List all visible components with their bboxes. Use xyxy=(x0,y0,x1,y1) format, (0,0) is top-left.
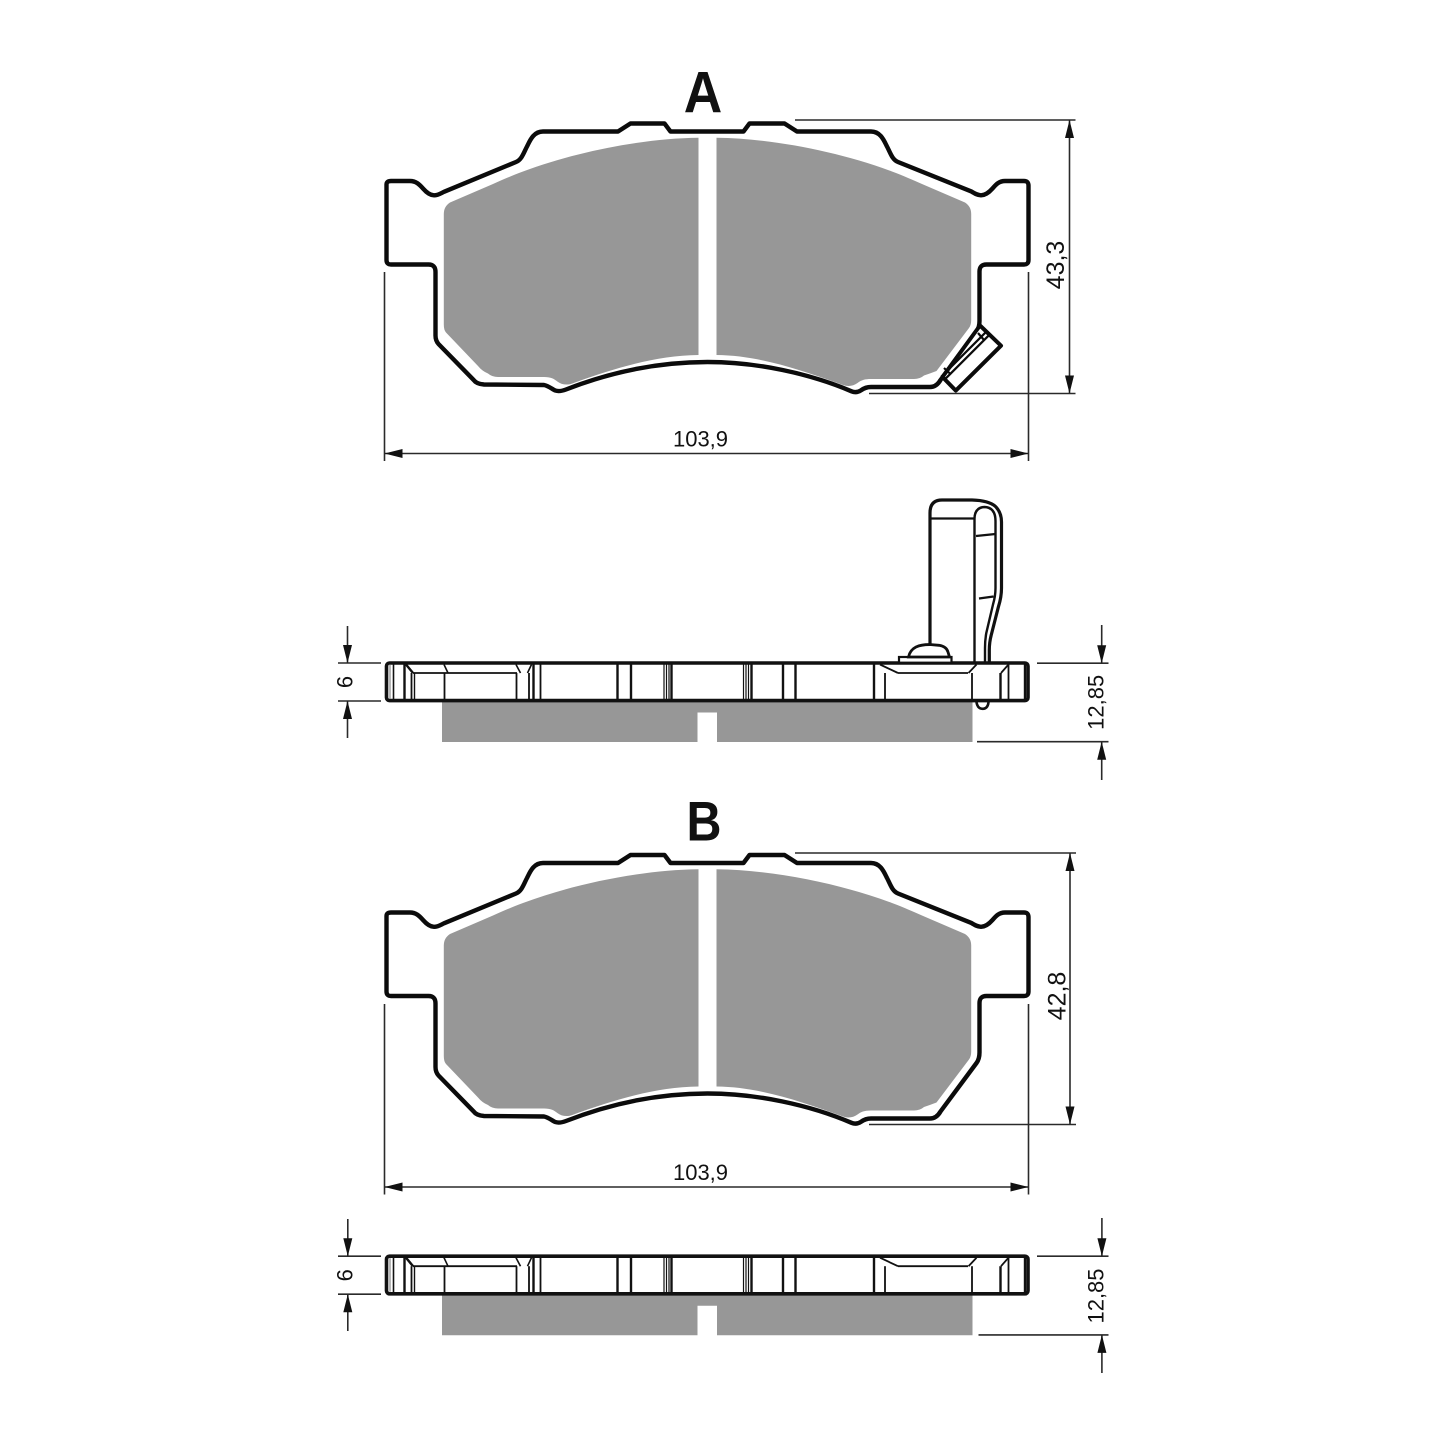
svg-text:42,8: 42,8 xyxy=(1044,972,1072,1021)
svg-text:43,3: 43,3 xyxy=(1042,241,1070,290)
svg-text:103,9: 103,9 xyxy=(673,1160,728,1185)
svg-text:B: B xyxy=(687,790,722,853)
svg-text:A: A xyxy=(684,61,723,126)
svg-text:103,9: 103,9 xyxy=(673,427,728,452)
svg-text:12,85: 12,85 xyxy=(1084,1268,1109,1323)
svg-text:6: 6 xyxy=(333,1269,358,1281)
svg-text:6: 6 xyxy=(333,676,358,688)
svg-text:12,85: 12,85 xyxy=(1084,675,1109,730)
